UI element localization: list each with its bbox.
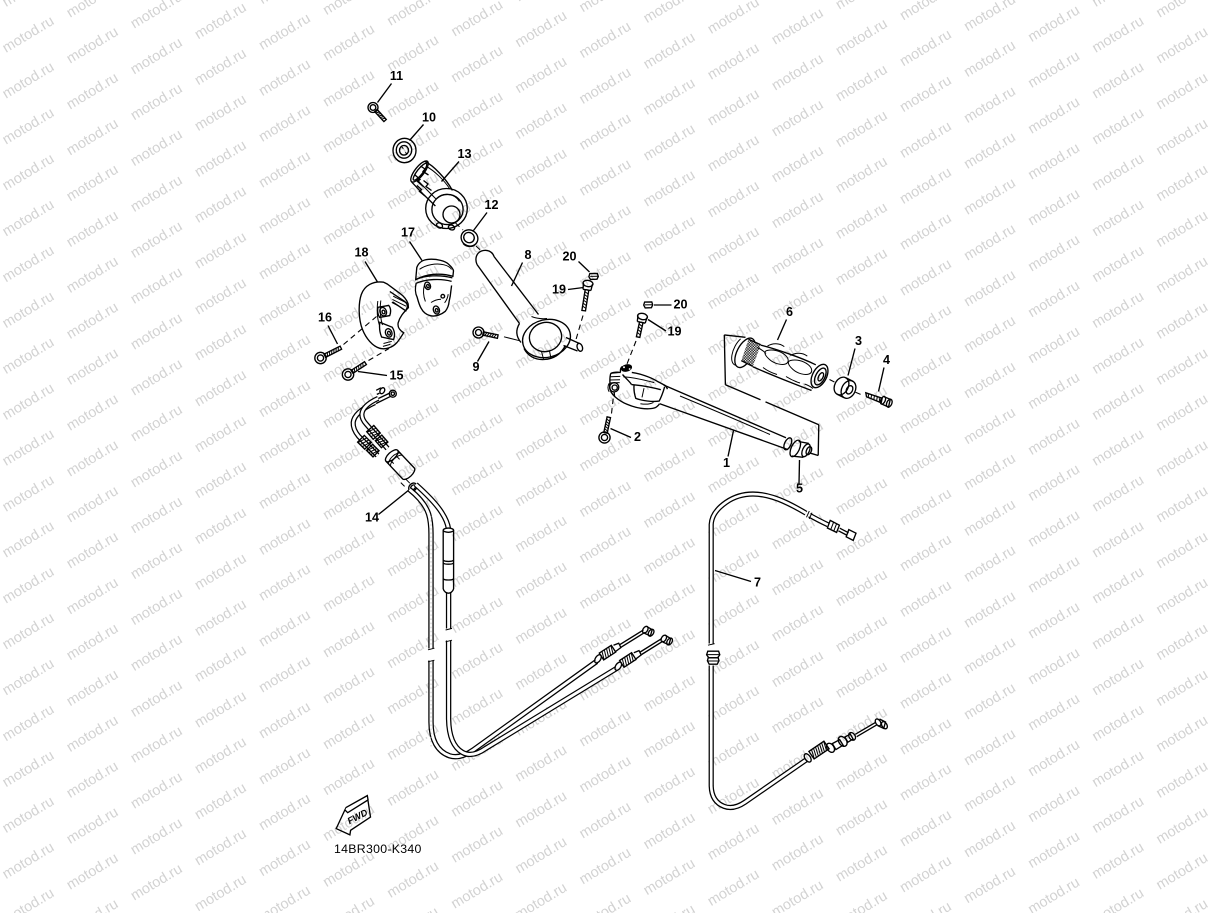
svg-text:10: 10	[422, 111, 436, 125]
svg-text:14: 14	[365, 511, 379, 525]
svg-text:19: 19	[552, 283, 566, 297]
svg-text:3: 3	[855, 334, 862, 348]
svg-text:1: 1	[723, 456, 730, 470]
svg-text:17: 17	[401, 226, 415, 240]
svg-text:8: 8	[524, 248, 531, 262]
svg-text:12: 12	[484, 198, 498, 212]
svg-text:16: 16	[318, 311, 332, 325]
svg-text:15: 15	[389, 369, 403, 383]
svg-text:9: 9	[472, 360, 479, 374]
svg-text:13: 13	[457, 147, 471, 161]
svg-text:20: 20	[673, 298, 687, 312]
svg-text:18: 18	[354, 246, 368, 260]
svg-text:14BR300-K340: 14BR300-K340	[334, 842, 422, 856]
svg-text:4: 4	[883, 353, 890, 367]
svg-text:11: 11	[390, 69, 403, 83]
svg-text:6: 6	[786, 305, 793, 319]
svg-text:2: 2	[634, 430, 641, 444]
svg-text:19: 19	[667, 325, 681, 339]
svg-text:7: 7	[754, 576, 761, 590]
svg-text:20: 20	[562, 250, 576, 264]
